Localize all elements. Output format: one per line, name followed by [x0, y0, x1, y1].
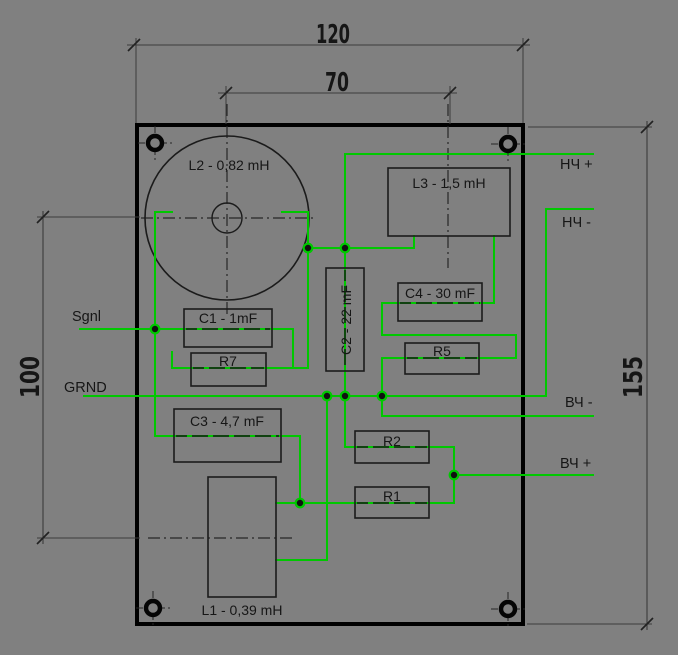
mounting-hole — [148, 136, 162, 150]
junction-dot — [341, 392, 350, 401]
terminal-grnd-label: GRND — [64, 380, 107, 396]
mounting-hole — [146, 601, 160, 615]
terminal-nch-minus-label: НЧ - — [562, 215, 591, 231]
junction-dot — [304, 244, 313, 253]
junction-dot — [296, 499, 305, 508]
component-L2-label: L2 - 0,82 mH — [189, 157, 270, 173]
dim-100-value: 100 — [16, 356, 46, 398]
component-C1-label: C1 - 1mF — [199, 310, 257, 326]
component-L3-label: L3 - 1,5 mH — [412, 175, 485, 191]
mounting-hole — [501, 137, 515, 151]
component-C3-label: C3 - 4,7 mF — [190, 413, 264, 429]
component-R5-label: R5 — [433, 343, 451, 359]
junction-dot — [450, 471, 459, 480]
component-C4-label: C4 - 30 mF — [405, 285, 475, 301]
terminal-sgnl-label: Sgnl — [72, 309, 101, 325]
mounting-hole — [501, 602, 515, 616]
terminal-vch-minus-label: ВЧ - — [565, 395, 593, 411]
dim-70-value: 70 — [325, 68, 349, 98]
junction-dot — [151, 325, 160, 334]
dim-155-value: 155 — [619, 356, 649, 398]
dim-120-value: 120 — [316, 20, 350, 50]
component-R1-label: R1 — [383, 488, 401, 504]
drawing-root: 12070100155L2 - 0,82 mHL3 - 1,5 mHC1 - 1… — [0, 0, 678, 655]
crossover-board-canvas: 12070100155L2 - 0,82 mHL3 - 1,5 mHC1 - 1… — [0, 0, 678, 655]
junction-dot — [378, 392, 387, 401]
component-C2-label: C2 - 22 mF — [338, 285, 354, 355]
component-R2-label: R2 — [383, 433, 401, 449]
component-R7-label: R7 — [219, 353, 237, 369]
terminal-vch-plus-label: ВЧ + — [560, 456, 591, 472]
component-L1-label: L1 - 0,39 mH — [202, 602, 283, 618]
junction-dot — [323, 392, 332, 401]
junction-dot — [341, 244, 350, 253]
terminal-nch-plus-label: НЧ + — [560, 157, 593, 173]
